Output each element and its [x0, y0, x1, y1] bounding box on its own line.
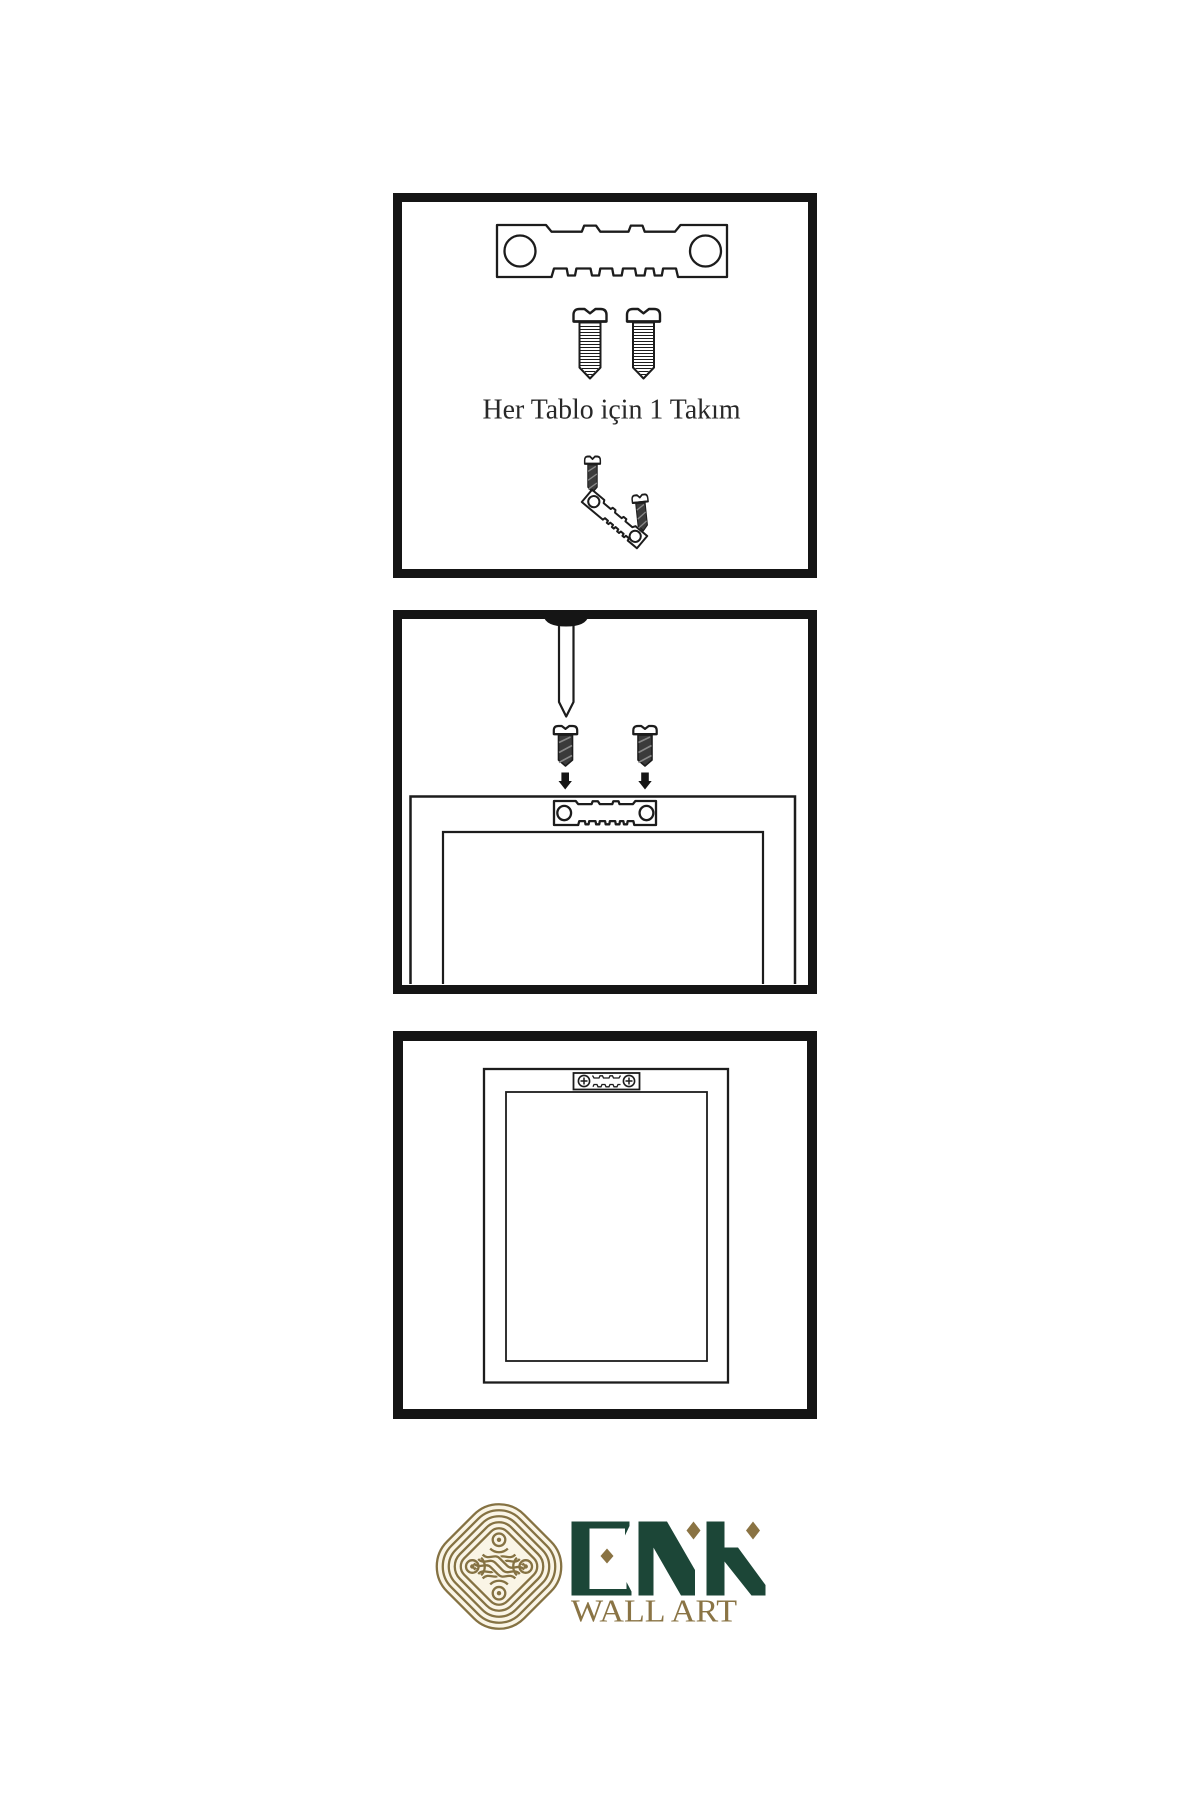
svg-text:Her Tablo için 1 Takım: Her Tablo için 1 Takım: [483, 394, 741, 426]
svg-text:WALL ART: WALL ART: [571, 1593, 737, 1629]
